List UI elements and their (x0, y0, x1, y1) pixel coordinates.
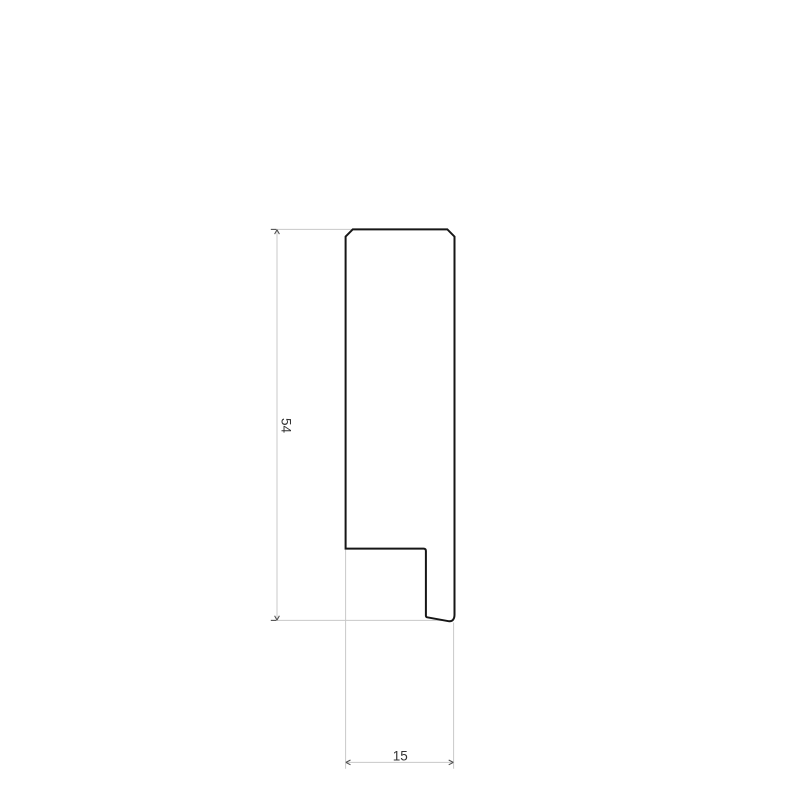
svg-text:54: 54 (279, 418, 294, 434)
svg-text:15: 15 (393, 748, 408, 763)
